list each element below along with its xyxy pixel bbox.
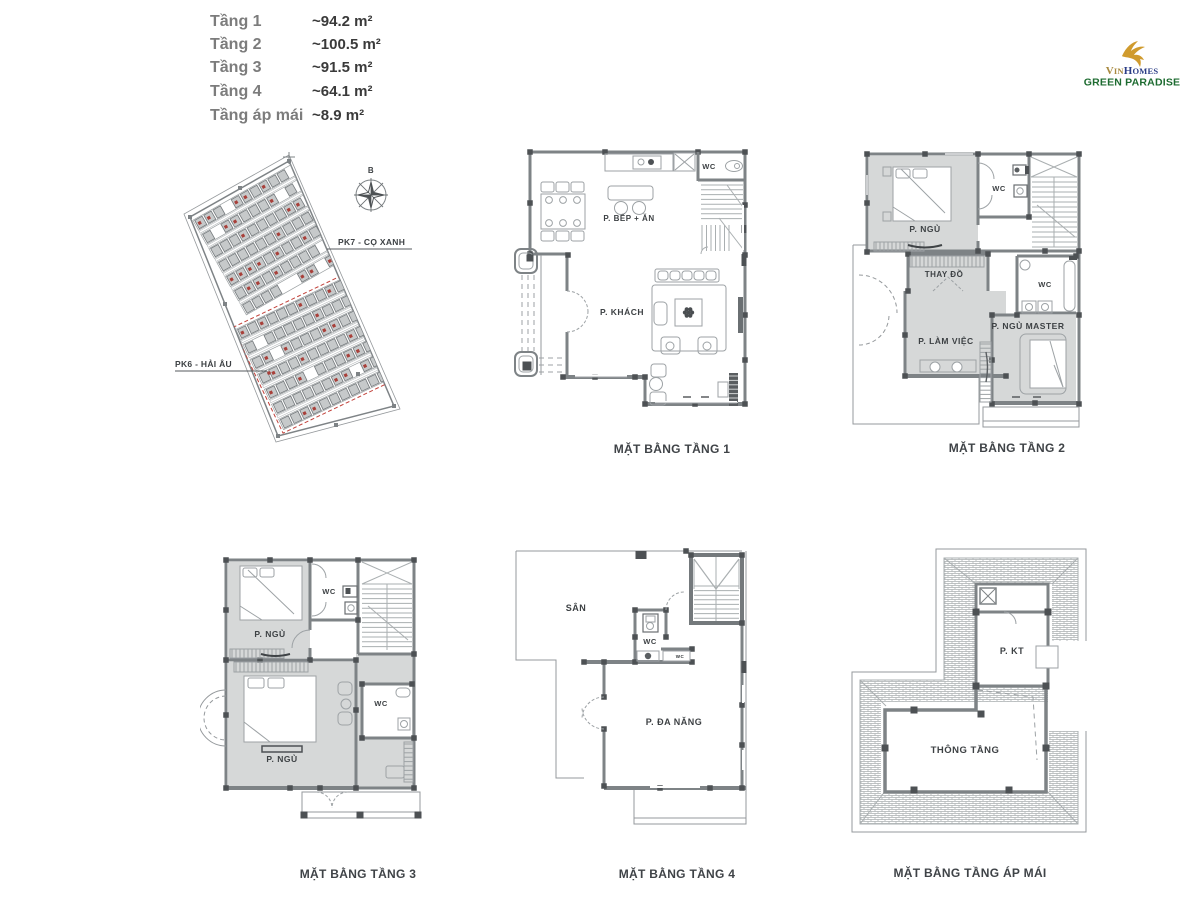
svg-text:THÔNG TẦNG: THÔNG TẦNG [931, 744, 1000, 756]
svg-text:SÂN: SÂN [566, 602, 587, 613]
svg-text:P. NGỦ MASTER: P. NGỦ MASTER [992, 320, 1065, 331]
svg-text:WC: WC [322, 587, 336, 596]
svg-text:P. KHÁCH: P. KHÁCH [600, 307, 644, 317]
svg-text:P. ĐA NĂNG: P. ĐA NĂNG [646, 717, 703, 727]
svg-text:WC: WC [374, 699, 388, 708]
svg-text:WC: WC [702, 162, 716, 171]
svg-text:P. BẾP + ĂN: P. BẾP + ĂN [603, 213, 654, 223]
svg-text:WC: WC [643, 637, 657, 646]
svg-text:THAY ĐỒ: THAY ĐỒ [925, 269, 964, 279]
svg-text:PK7 - CỌ XANH: PK7 - CỌ XANH [338, 237, 405, 247]
svg-text:WC: WC [1038, 280, 1052, 289]
svg-text:P. NGỦ: P. NGỦ [266, 753, 297, 764]
svg-text:P. LÀM VIỆC: P. LÀM VIỆC [918, 335, 973, 346]
svg-text:WC: WC [676, 654, 685, 659]
svg-text:P. NGỦ: P. NGỦ [254, 628, 285, 639]
svg-text:WC: WC [992, 184, 1006, 193]
svg-text:B: B [368, 166, 374, 175]
svg-text:VINHOMES: VINHOMES [1106, 65, 1159, 77]
svg-text:P. KT: P. KT [1000, 646, 1024, 656]
svg-text:P. NGỦ: P. NGỦ [909, 223, 940, 234]
svg-text:PK6 - HẢI ÂU: PK6 - HẢI ÂU [175, 358, 232, 369]
svg-text:GREEN PARADISE: GREEN PARADISE [1084, 77, 1181, 89]
